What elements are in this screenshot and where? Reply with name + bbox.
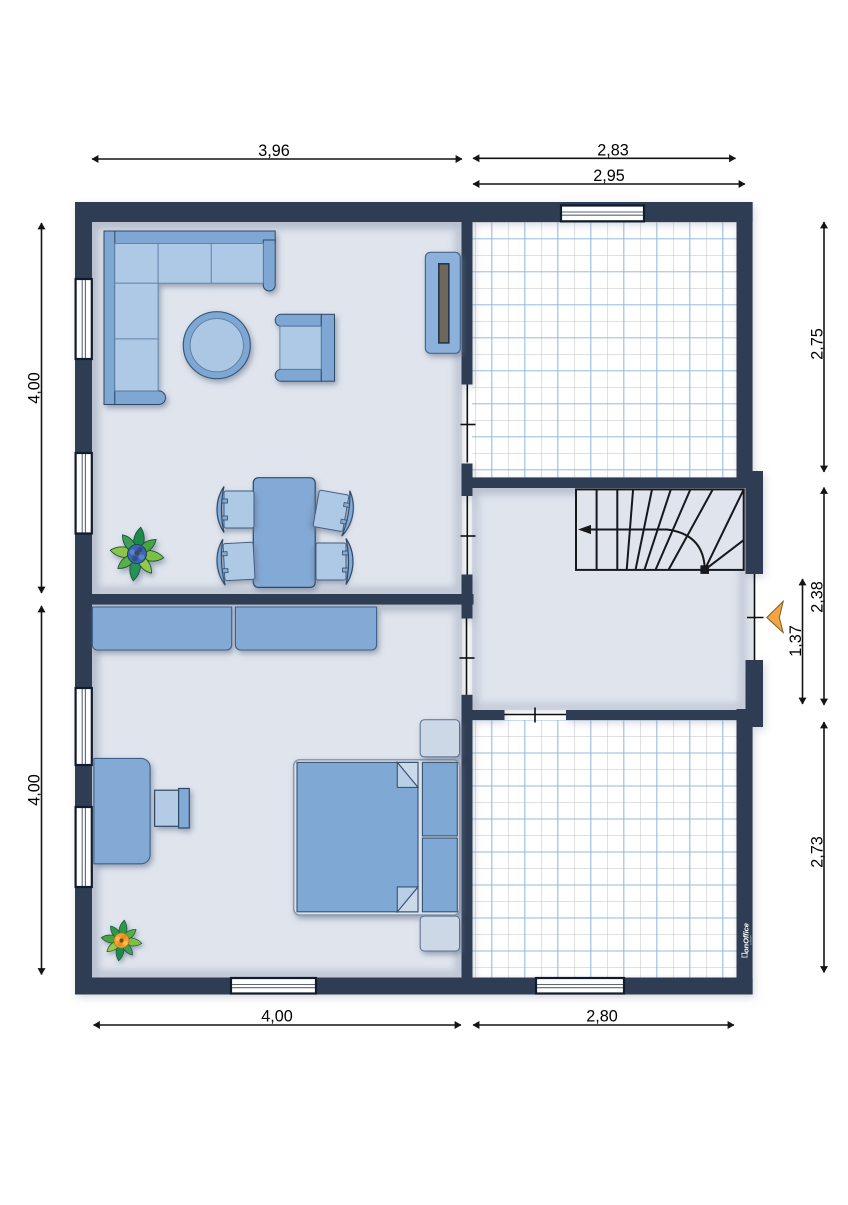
svg-text:4,00: 4,00: [26, 372, 44, 404]
svg-text:2,80: 2,80: [586, 1008, 618, 1026]
svg-text:2,95: 2,95: [593, 167, 625, 185]
svg-text:3,96: 3,96: [258, 142, 290, 160]
svg-text:2,73: 2,73: [809, 836, 827, 868]
svg-text:2,75: 2,75: [809, 328, 827, 360]
svg-text:4,00: 4,00: [26, 774, 44, 806]
svg-text:2,38: 2,38: [809, 581, 827, 613]
svg-text:4,00: 4,00: [261, 1008, 293, 1026]
svg-text:1,37: 1,37: [787, 625, 805, 657]
svg-text:software: software: [748, 935, 752, 945]
svg-text:2,83: 2,83: [597, 142, 629, 160]
